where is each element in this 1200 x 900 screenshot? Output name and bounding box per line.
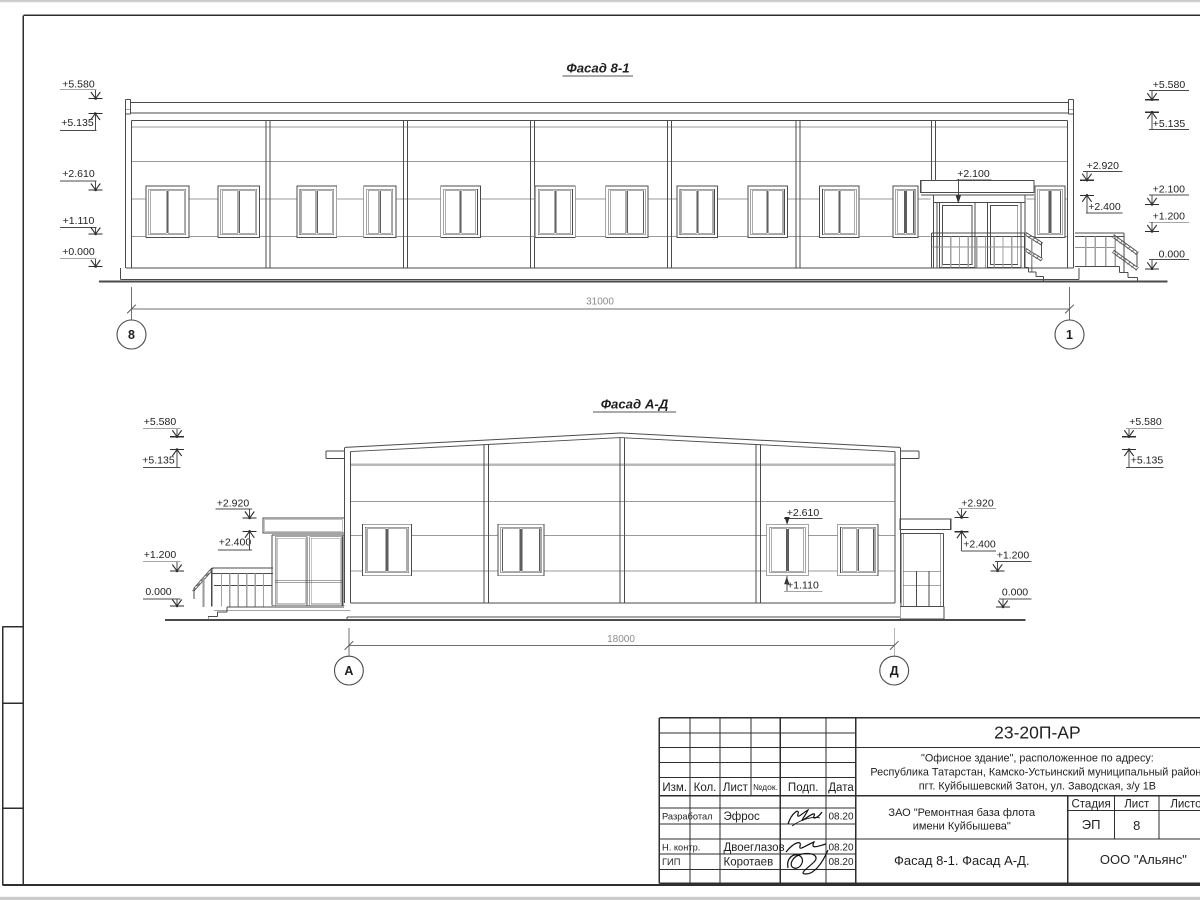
svg-text:+2.610: +2.610	[62, 168, 95, 180]
svg-text:А: А	[344, 664, 353, 678]
svg-text:08.20: 08.20	[828, 843, 853, 854]
svg-text:31000: 31000	[586, 297, 614, 308]
svg-text:ООО "Альянс": ООО "Альянс"	[1100, 852, 1187, 867]
svg-text:Стадия: Стадия	[1071, 799, 1110, 811]
svg-text:+2.920: +2.920	[217, 498, 250, 510]
svg-text:18000: 18000	[607, 634, 635, 645]
svg-text:Кол.: Кол.	[694, 782, 717, 794]
svg-text:+1.200: +1.200	[1153, 211, 1186, 223]
svg-text:Д: Д	[890, 664, 899, 678]
svg-text:Эфрос: Эфрос	[724, 811, 761, 823]
svg-text:+2.400: +2.400	[219, 537, 252, 549]
svg-text:+2.100: +2.100	[1153, 184, 1186, 196]
svg-text:+5.580: +5.580	[144, 416, 177, 428]
svg-text:Лист: Лист	[1124, 799, 1150, 811]
svg-text:+1.200: +1.200	[144, 549, 177, 561]
svg-text:08.20: 08.20	[828, 812, 853, 823]
svg-text:ЭП: ЭП	[1082, 817, 1101, 832]
svg-text:+2.400: +2.400	[963, 539, 996, 551]
svg-text:+2.400: +2.400	[1088, 201, 1121, 213]
svg-text:+5.135: +5.135	[1153, 118, 1186, 130]
svg-text:1: 1	[1066, 328, 1073, 342]
svg-text:+5.580: +5.580	[62, 79, 95, 91]
svg-text:+2.920: +2.920	[1087, 160, 1120, 172]
svg-text:ЗАО "Ремонтная база флота: ЗАО "Ремонтная база флота	[888, 807, 1036, 819]
svg-text:пгт. Куйбышевский Затон, ул. З: пгт. Куйбышевский Затон, ул. Заводская, …	[919, 780, 1156, 792]
svg-text:+5.580: +5.580	[1129, 416, 1162, 428]
svg-text:8: 8	[128, 328, 135, 342]
svg-text:"Офисное здание", расположенно: "Офисное здание", расположенное по адрес…	[921, 753, 1154, 765]
svg-text:+1.110: +1.110	[63, 215, 95, 227]
svg-text:+2.100: +2.100	[957, 168, 990, 180]
svg-text:0.000: 0.000	[1002, 587, 1028, 599]
svg-text:+5.135: +5.135	[1131, 455, 1164, 467]
svg-text:№док.: №док.	[753, 782, 778, 792]
svg-text:Двоеглазов: Двоеглазов	[724, 842, 785, 854]
svg-text:+5.135: +5.135	[61, 117, 94, 129]
svg-text:23-20П-АР: 23-20П-АР	[994, 723, 1081, 743]
svg-text:8: 8	[1133, 818, 1140, 833]
svg-text:Лист: Лист	[723, 782, 749, 794]
svg-text:Фасад 8-1. Фасад А-Д.: Фасад 8-1. Фасад А-Д.	[894, 853, 1030, 868]
svg-text:Фасад 8-1: Фасад 8-1	[566, 61, 629, 76]
svg-text:+2.920: +2.920	[961, 498, 994, 510]
svg-text:Подп.: Подп.	[788, 782, 819, 794]
svg-text:ГИП: ГИП	[662, 857, 680, 867]
svg-text:+5.135: +5.135	[142, 455, 175, 467]
svg-text:Коротаев: Коротаев	[724, 857, 774, 869]
svg-text:Н. контр.: Н. контр.	[662, 843, 700, 853]
svg-text:Фасад А-Д: Фасад А-Д	[601, 397, 669, 412]
svg-text:Изм.: Изм.	[662, 782, 687, 794]
svg-text:08.20: 08.20	[828, 857, 853, 868]
svg-text:+1.110: +1.110	[787, 580, 819, 592]
svg-text:имени Куйбышева": имени Куйбышева"	[913, 821, 1011, 833]
svg-text:+1.200: +1.200	[997, 550, 1030, 562]
svg-text:Дата: Дата	[828, 782, 854, 794]
svg-text:0.000: 0.000	[145, 586, 171, 598]
svg-text:Листов: Листов	[1170, 799, 1200, 811]
svg-text:Разработал: Разработал	[662, 812, 713, 822]
svg-text:0.000: 0.000	[1159, 249, 1185, 261]
svg-text:+5.580: +5.580	[1153, 79, 1186, 91]
svg-text:+2.610: +2.610	[787, 507, 820, 519]
svg-text:+0.000: +0.000	[62, 246, 95, 258]
svg-text:Республика Татарстан, Камско-У: Республика Татарстан, Камско-Устьинский …	[870, 767, 1200, 779]
